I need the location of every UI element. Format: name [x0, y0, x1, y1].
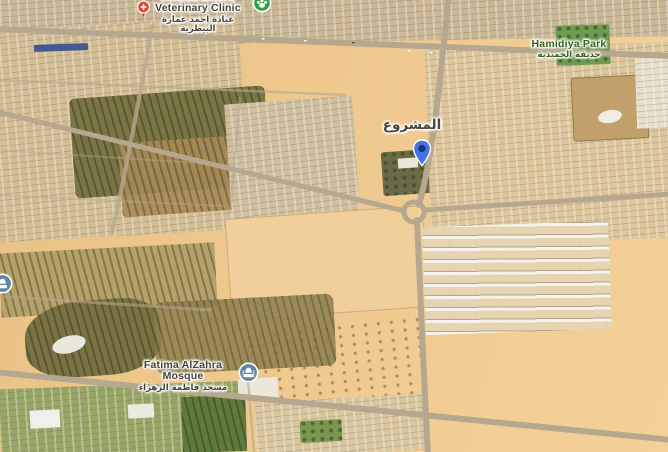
road-network: [0, 0, 668, 452]
destination-pin[interactable]: [412, 139, 432, 167]
park-label-name: Hamidiya Park: [516, 39, 622, 50]
location-pin-icon: [412, 139, 432, 167]
traffic-dots: [262, 38, 438, 122]
mosque-badge[interactable]: [238, 362, 259, 383]
vet-label-arabic: عيادة احمد عمارة البيطرية: [146, 16, 250, 34]
vet-label-line2: Veterinary Clinic: [146, 3, 250, 14]
edge-poi-badge[interactable]: [0, 273, 13, 294]
paw-icon: [252, 0, 272, 13]
veterinary-clinic-label[interactable]: Ahmed Emara Veterinary Clinic عيادة احمد…: [146, 0, 250, 34]
park-label-arabic: حديقة الحميدية: [516, 51, 622, 60]
mosque-icon: [0, 273, 13, 294]
pet-place-badge[interactable]: [252, 0, 272, 13]
mosque-label-name: Fatima AlZahra Mosque: [127, 360, 239, 383]
mosque-label[interactable]: Fatima AlZahra Mosque مسجد فاطمة الزهراء: [127, 360, 239, 393]
district-label-arabic: المشروع: [372, 118, 452, 133]
hamidiya-park-label[interactable]: Hamidiya Park حديقة الحميدية: [516, 39, 622, 61]
mosque-label-arabic: مسجد فاطمة الزهراء: [127, 384, 239, 393]
district-label[interactable]: المشروع: [372, 118, 452, 133]
mosque-icon: [238, 362, 259, 383]
map-canvas[interactable]: Ahmed Emara Veterinary Clinic عيادة احمد…: [0, 0, 668, 452]
